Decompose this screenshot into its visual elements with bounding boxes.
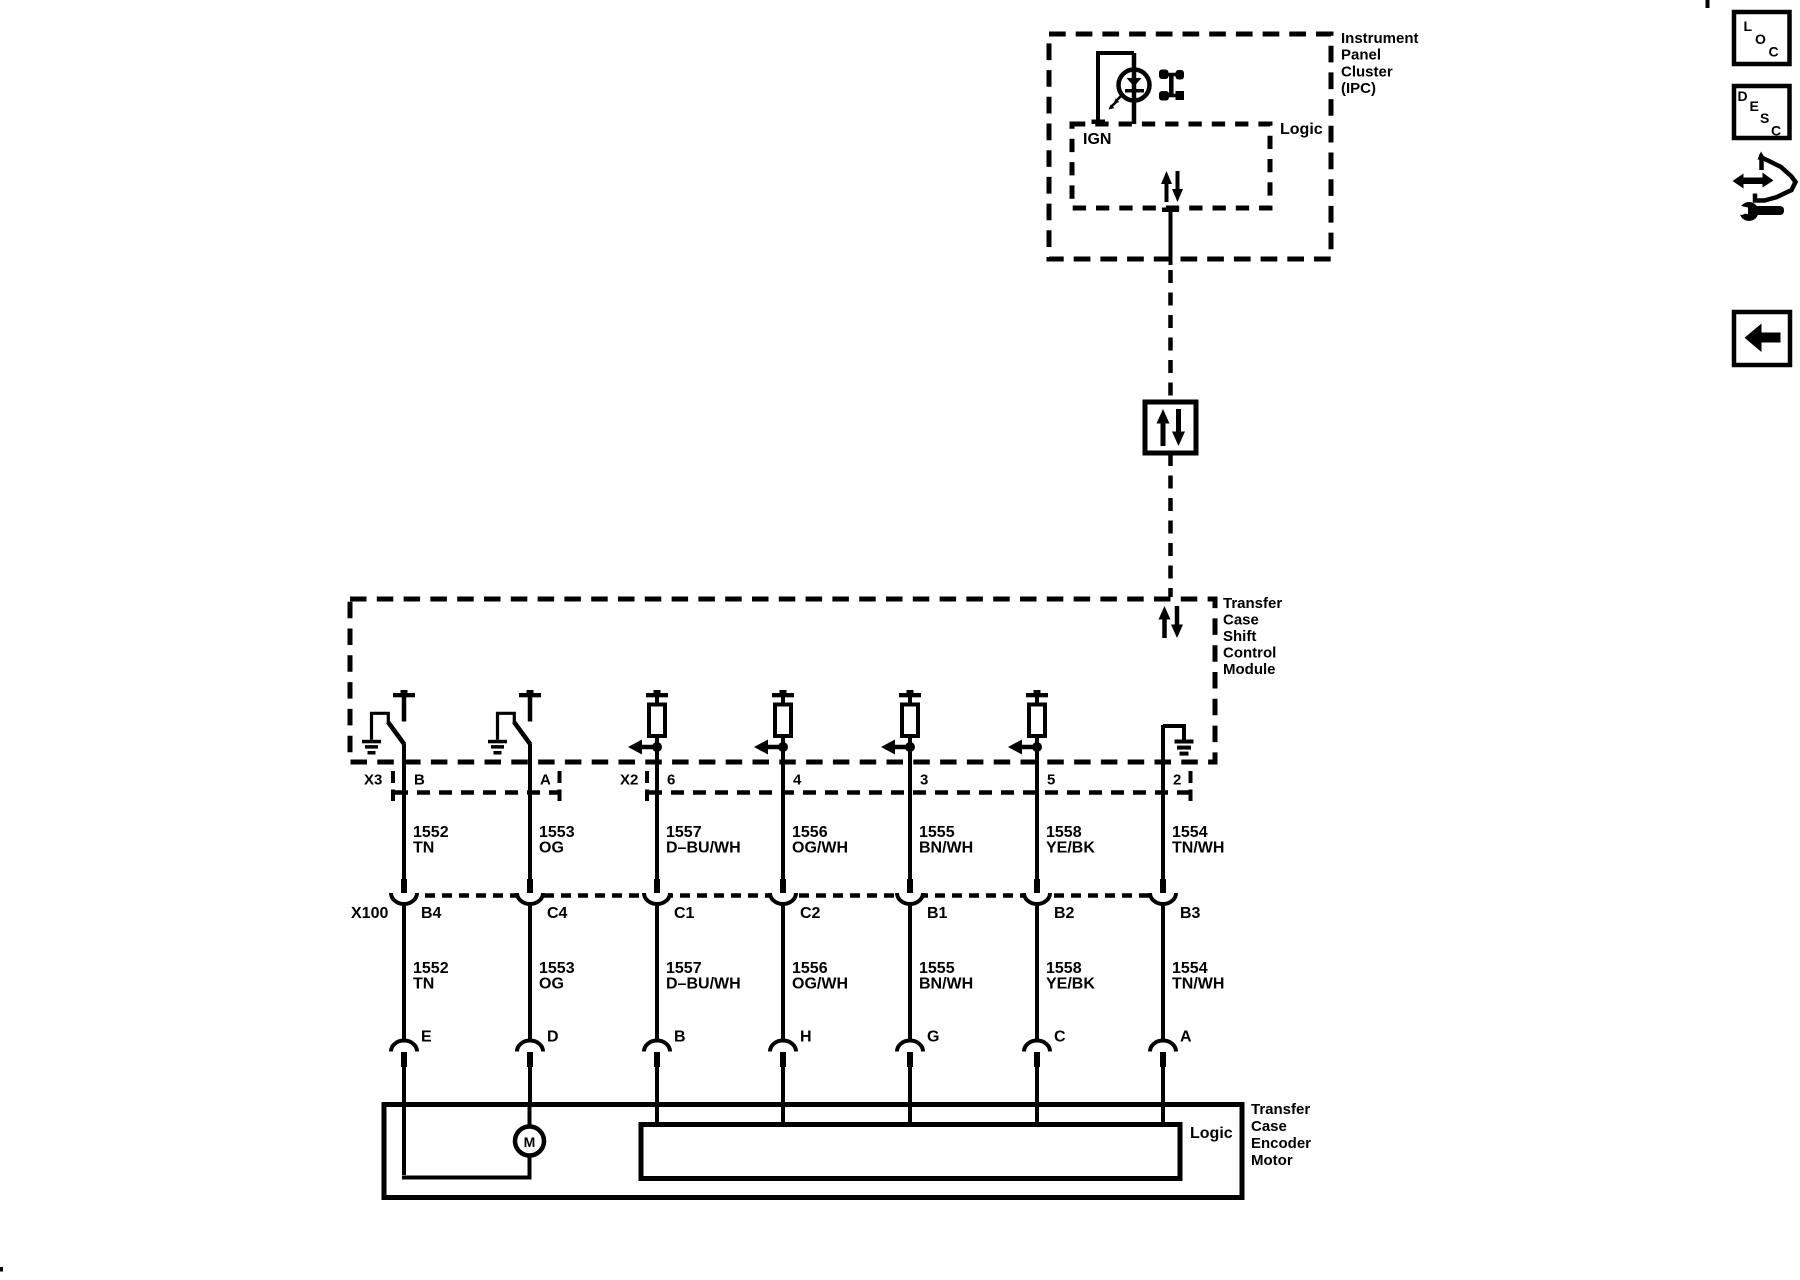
svg-text:Logic: Logic	[1280, 121, 1323, 138]
svg-text:B2: B2	[1054, 905, 1075, 922]
svg-text:Instrument: Instrument	[1341, 30, 1419, 47]
svg-text:2: 2	[1173, 772, 1181, 789]
svg-text:Control: Control	[1223, 645, 1276, 662]
svg-text:1557: 1557	[666, 824, 702, 841]
svg-text:IGN: IGN	[1083, 131, 1111, 148]
svg-text:TN/WH: TN/WH	[1172, 976, 1224, 993]
svg-text:1556: 1556	[792, 960, 828, 977]
svg-text:1556: 1556	[792, 824, 828, 841]
svg-text:C2: C2	[800, 905, 821, 922]
svg-text:3: 3	[920, 772, 928, 789]
svg-text:G: G	[927, 1029, 939, 1046]
svg-text:A: A	[1180, 1029, 1192, 1046]
svg-text:Logic: Logic	[1190, 1125, 1233, 1142]
svg-text:D–BU/WH: D–BU/WH	[666, 840, 741, 857]
svg-text:1553: 1553	[539, 824, 575, 841]
svg-text:E: E	[421, 1029, 432, 1046]
svg-text:B3: B3	[1180, 905, 1201, 922]
svg-text:OG: OG	[539, 976, 564, 993]
svg-text:C4: C4	[547, 905, 568, 922]
svg-text:C: C	[1771, 123, 1781, 139]
svg-text:TN/WH: TN/WH	[1172, 840, 1224, 857]
svg-text:A: A	[540, 772, 551, 789]
svg-text:1558: 1558	[1046, 824, 1082, 841]
svg-text:O: O	[1755, 31, 1766, 47]
svg-text:C: C	[1769, 44, 1779, 60]
svg-text:1557: 1557	[666, 960, 702, 977]
svg-text:YE/BK: YE/BK	[1046, 976, 1095, 993]
svg-text:Case: Case	[1223, 612, 1259, 629]
svg-text:1552: 1552	[413, 960, 449, 977]
svg-text:C1: C1	[674, 905, 695, 922]
svg-text:B: B	[414, 772, 425, 789]
svg-text:6: 6	[667, 772, 675, 789]
svg-text:Shift: Shift	[1223, 628, 1256, 645]
svg-text:Panel: Panel	[1341, 47, 1381, 64]
svg-text:B4: B4	[421, 905, 442, 922]
svg-text:C: C	[1054, 1029, 1066, 1046]
svg-text:(IPC): (IPC)	[1341, 80, 1376, 97]
svg-text:X3: X3	[364, 772, 382, 789]
svg-text:B: B	[674, 1029, 686, 1046]
svg-text:YE/BK: YE/BK	[1046, 840, 1095, 857]
svg-text:4: 4	[793, 772, 802, 789]
svg-text:Transfer: Transfer	[1223, 595, 1282, 612]
svg-text:Encoder: Encoder	[1251, 1135, 1311, 1152]
svg-text:1555: 1555	[919, 824, 955, 841]
svg-text:Motor: Motor	[1251, 1152, 1293, 1169]
svg-text:BN/WH: BN/WH	[919, 976, 973, 993]
svg-text:D: D	[547, 1029, 559, 1046]
svg-text:Transfer: Transfer	[1251, 1101, 1310, 1118]
svg-text:BN/WH: BN/WH	[919, 840, 973, 857]
svg-text:TN: TN	[413, 976, 434, 993]
svg-text:OG/WH: OG/WH	[792, 840, 848, 857]
svg-text:1552: 1552	[413, 824, 449, 841]
svg-text:H: H	[800, 1029, 812, 1046]
svg-text:1554: 1554	[1172, 824, 1208, 841]
svg-text:5: 5	[1047, 772, 1055, 789]
svg-text:Cluster: Cluster	[1341, 63, 1393, 80]
svg-text:OG/WH: OG/WH	[792, 976, 848, 993]
svg-text:X2: X2	[620, 772, 638, 789]
svg-text:X100: X100	[351, 905, 388, 922]
svg-text:L: L	[1744, 18, 1753, 34]
svg-text:1555: 1555	[919, 960, 955, 977]
svg-text:S: S	[1760, 110, 1769, 126]
svg-text:M: M	[524, 1134, 536, 1150]
svg-text:1558: 1558	[1046, 960, 1082, 977]
svg-text:D–BU/WH: D–BU/WH	[666, 976, 741, 993]
svg-text:E: E	[1750, 98, 1759, 114]
svg-text:Case: Case	[1251, 1118, 1287, 1135]
svg-text:OG: OG	[539, 840, 564, 857]
svg-text:B1: B1	[927, 905, 948, 922]
svg-text:1554: 1554	[1172, 960, 1208, 977]
svg-text:1553: 1553	[539, 960, 575, 977]
svg-text:TN: TN	[413, 840, 434, 857]
svg-text:Module: Module	[1223, 661, 1276, 678]
svg-text:D: D	[1738, 88, 1748, 104]
